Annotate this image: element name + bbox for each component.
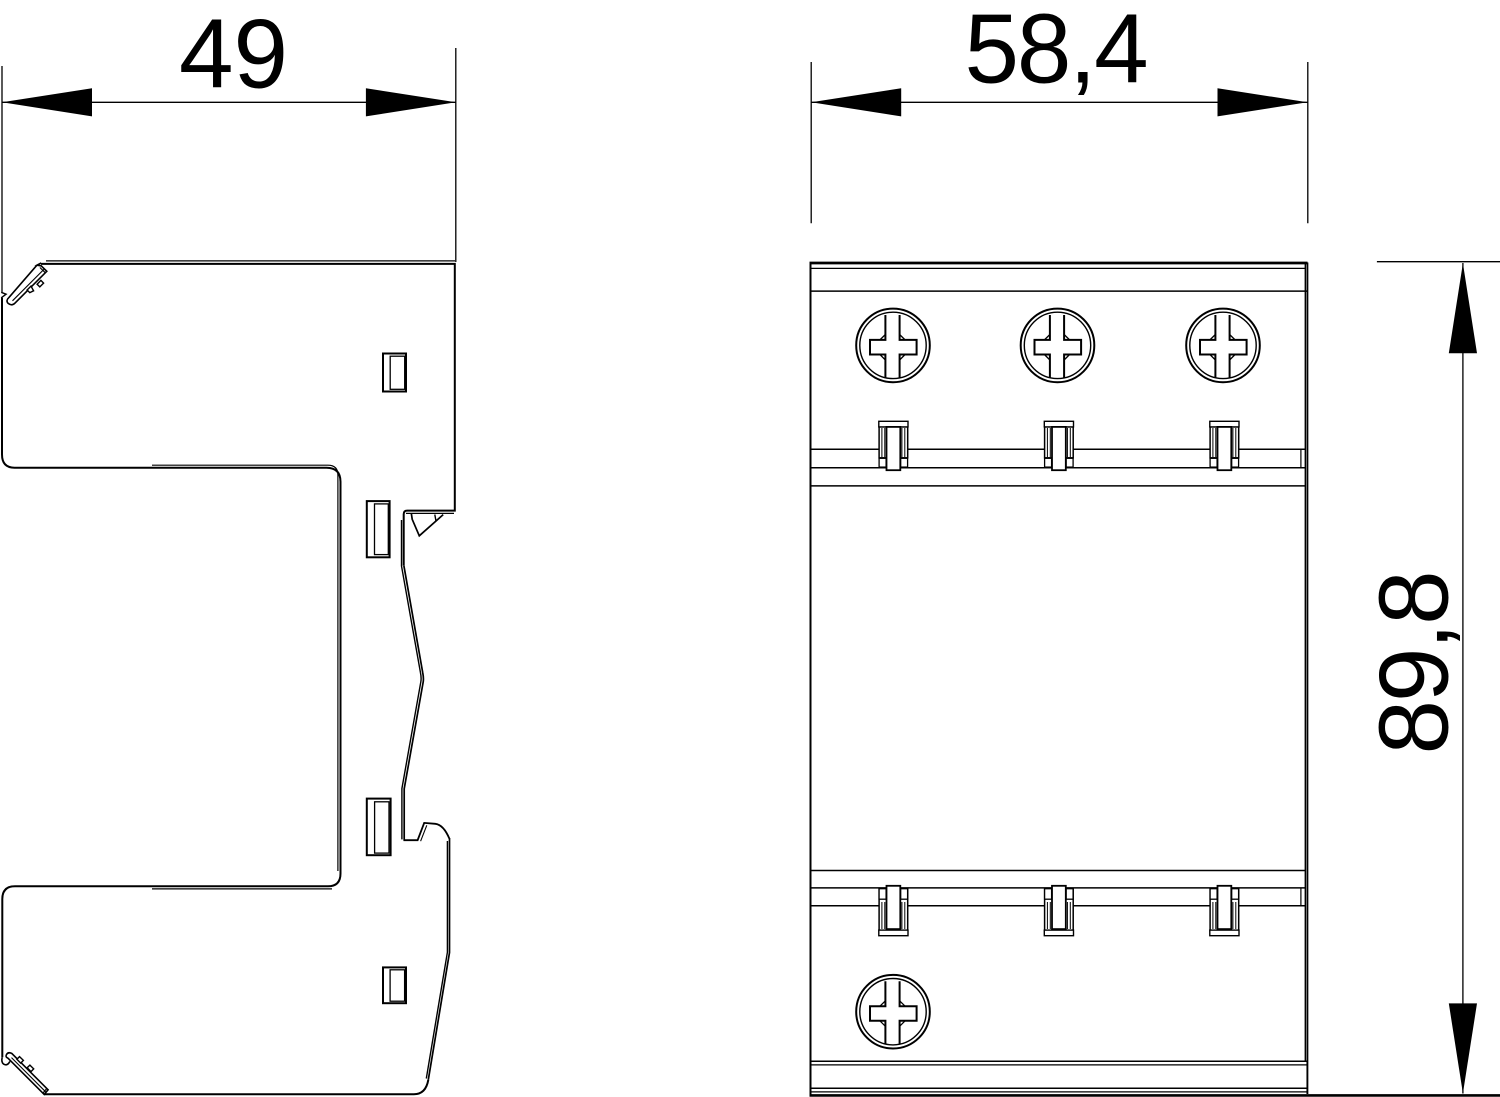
svg-text:58,4: 58,4 [965, 0, 1147, 103]
svg-text:89,8: 89,8 [1359, 573, 1469, 755]
svg-text:49: 49 [179, 0, 288, 108]
